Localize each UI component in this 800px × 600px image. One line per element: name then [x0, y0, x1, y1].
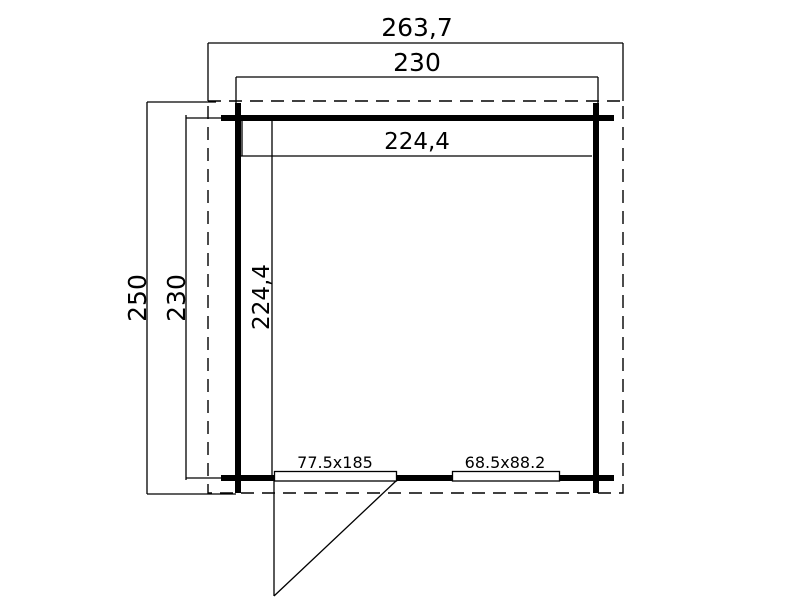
window-size-label: 68.5x88.2	[465, 453, 546, 472]
outer-width-label: 230	[393, 48, 441, 77]
door-size-label: 77.5x185	[297, 453, 373, 472]
dim-line-outer-width	[236, 77, 598, 115]
roof-depth-label: 250	[123, 274, 152, 322]
outer-depth-label: 230	[162, 274, 191, 322]
roof-width-label: 263,7	[381, 13, 453, 42]
dim-line-outer-depth	[186, 115, 221, 480]
floor-plan-canvas: 263,7 230 224,4 250 230 224,4 77.5x185 6…	[0, 0, 800, 600]
dim-line-roof-depth	[147, 102, 236, 494]
door-opening	[275, 472, 397, 482]
inner-width-label: 224,4	[384, 129, 450, 155]
inner-depth-label: 224,4	[249, 264, 275, 330]
floor-plan-drawing: 263,7 230 224,4 250 230 224,4 77.5x185 6…	[0, 0, 800, 600]
window-opening	[453, 472, 560, 482]
door-swing-line	[274, 481, 396, 596]
